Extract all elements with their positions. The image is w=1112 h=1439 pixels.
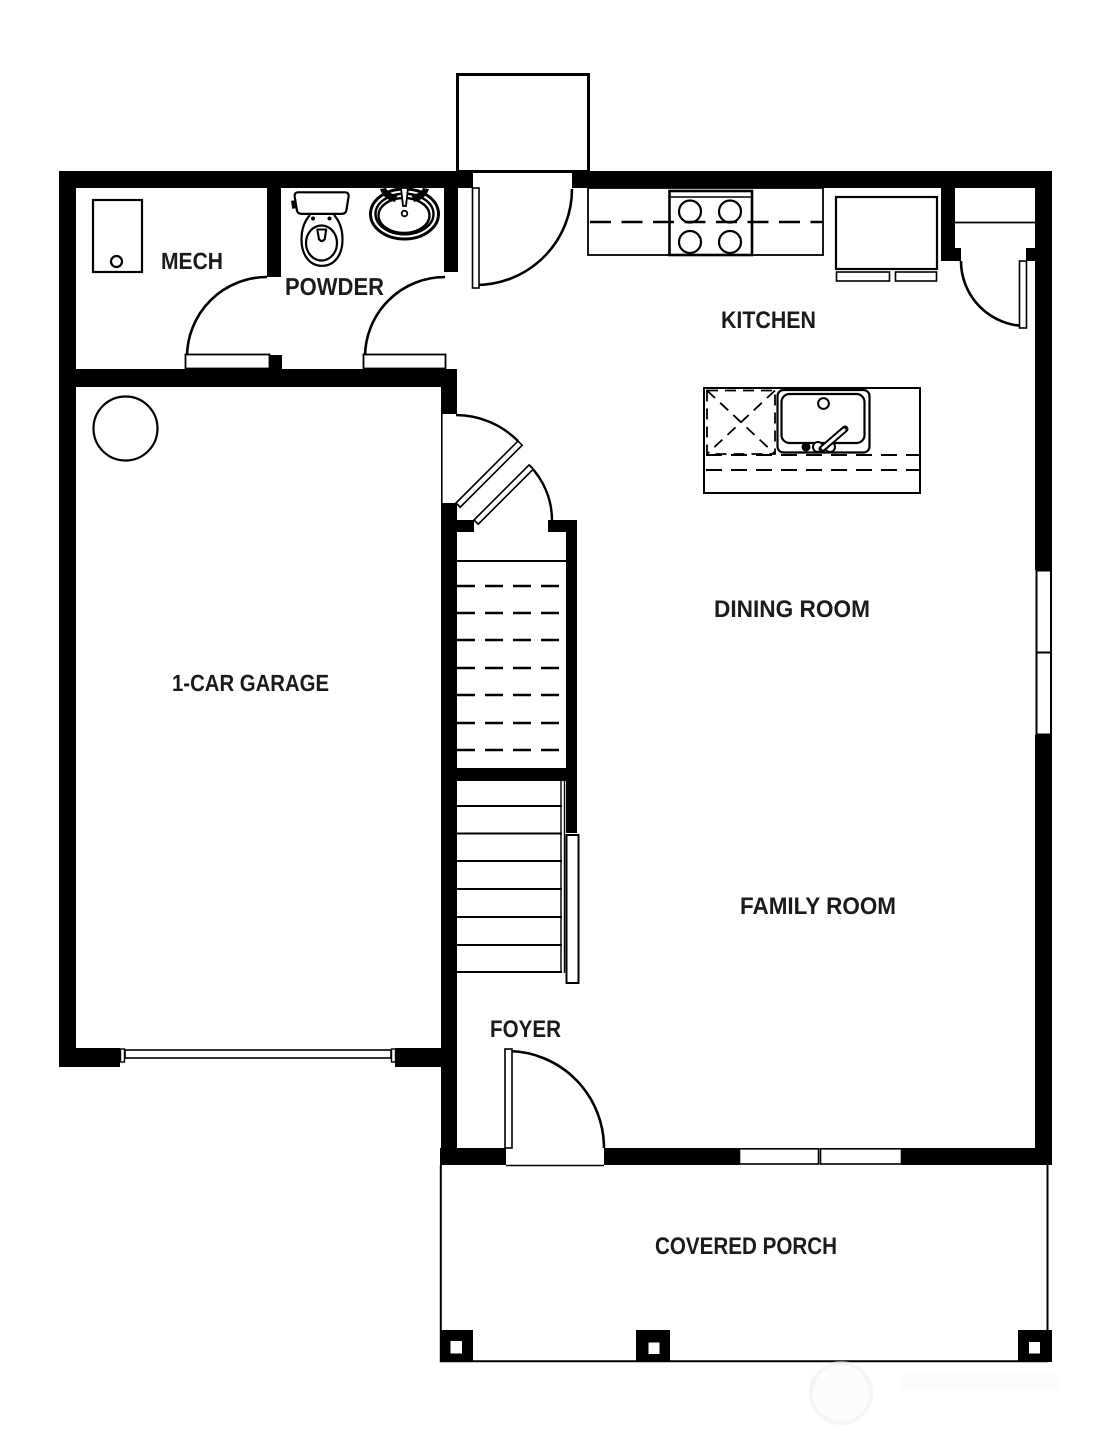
svg-text:KITCHEN: KITCHEN bbox=[721, 307, 816, 334]
svg-text:POWDER: POWDER bbox=[285, 274, 384, 301]
svg-text:FAMILY ROOM: FAMILY ROOM bbox=[740, 893, 896, 920]
svg-text:COVERED PORCH: COVERED PORCH bbox=[655, 1233, 837, 1260]
svg-text:DINING ROOM: DINING ROOM bbox=[714, 596, 870, 623]
svg-text:FOYER: FOYER bbox=[490, 1016, 561, 1043]
svg-text:1-CAR GARAGE: 1-CAR GARAGE bbox=[172, 670, 329, 696]
svg-text:MECH: MECH bbox=[161, 248, 223, 274]
